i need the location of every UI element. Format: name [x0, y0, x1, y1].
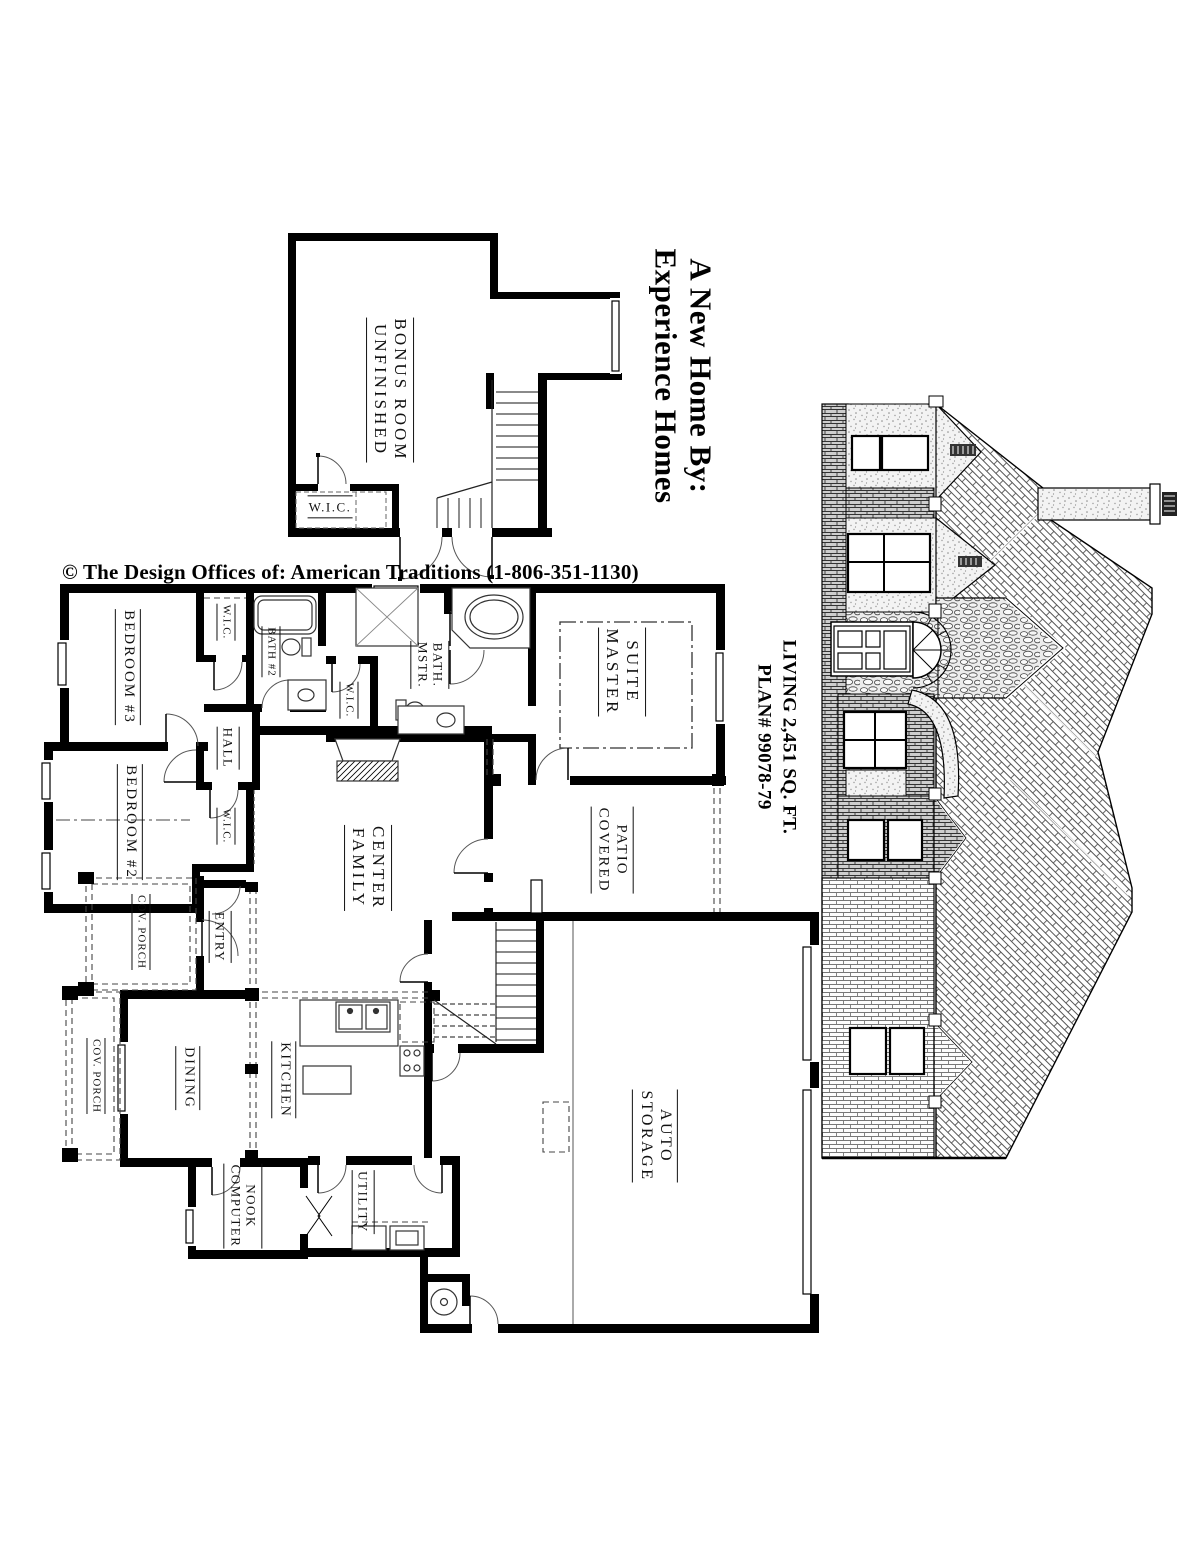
living-sqft: LIVING 2,451 SQ. FT. — [779, 640, 800, 834]
plan-number: PLAN# 99078-79 — [754, 664, 775, 810]
main-stairs — [434, 922, 536, 1044]
label-master-bath: MSTR. BATH. — [411, 641, 450, 689]
copyright-line: © The Design Offices of: American Tradit… — [62, 560, 639, 585]
label-bonus-wic: W.I.C. — [308, 495, 353, 518]
label-entry: ENTRY — [208, 911, 231, 963]
front-elevation — [822, 396, 1177, 1158]
label-hall: HALL — [216, 727, 239, 770]
label-covered-patio: COVERED PATIO — [590, 807, 633, 894]
label-wic-bedroom2: W.I.C. — [217, 808, 236, 845]
label-master-suite: MASTER SUITE — [598, 628, 646, 717]
label-computer-nook: COMPUTER NOOK — [224, 1164, 263, 1249]
title-line1: A New Home By: — [684, 258, 719, 493]
label-kitchen: KITCHEN — [272, 1041, 297, 1118]
main-plan-walls — [44, 584, 819, 1333]
plan-info-block: LIVING 2,451 SQ. FT. PLAN# 99078-79 — [751, 640, 800, 834]
label-wic-master: W.I.C. — [340, 682, 359, 719]
label-family-center: FAMILY CENTER — [344, 825, 392, 911]
label-bonus-room: UNFINISHED BONUS ROOM — [366, 318, 414, 463]
label-auto-storage: AUTO STORAGE — [632, 1090, 678, 1183]
plan-drawing — [0, 0, 1200, 1555]
label-bedroom3: BEDROOM #3 — [115, 609, 141, 725]
floorplan-sheet: A New Home By: Experience Homes © The De… — [0, 0, 1200, 1555]
label-utility: UTILITY — [351, 1170, 374, 1234]
label-cov-porch-side: COV. PORCH — [87, 1038, 106, 1114]
label-bath2: BATH #2 — [262, 626, 281, 677]
title-line2: Experience Homes — [649, 248, 684, 503]
plan-fixtures — [254, 588, 530, 1315]
sheet-title: A New Home By: Experience Homes — [648, 248, 717, 503]
label-cov-porch-front: COV. PORCH — [132, 894, 151, 970]
label-wic-bedroom3: W.I.C. — [217, 604, 236, 641]
label-bedroom2: BEDROOM #2 — [117, 764, 143, 880]
bonus-room-plan — [288, 233, 622, 537]
label-dining: DINING — [176, 1046, 201, 1110]
